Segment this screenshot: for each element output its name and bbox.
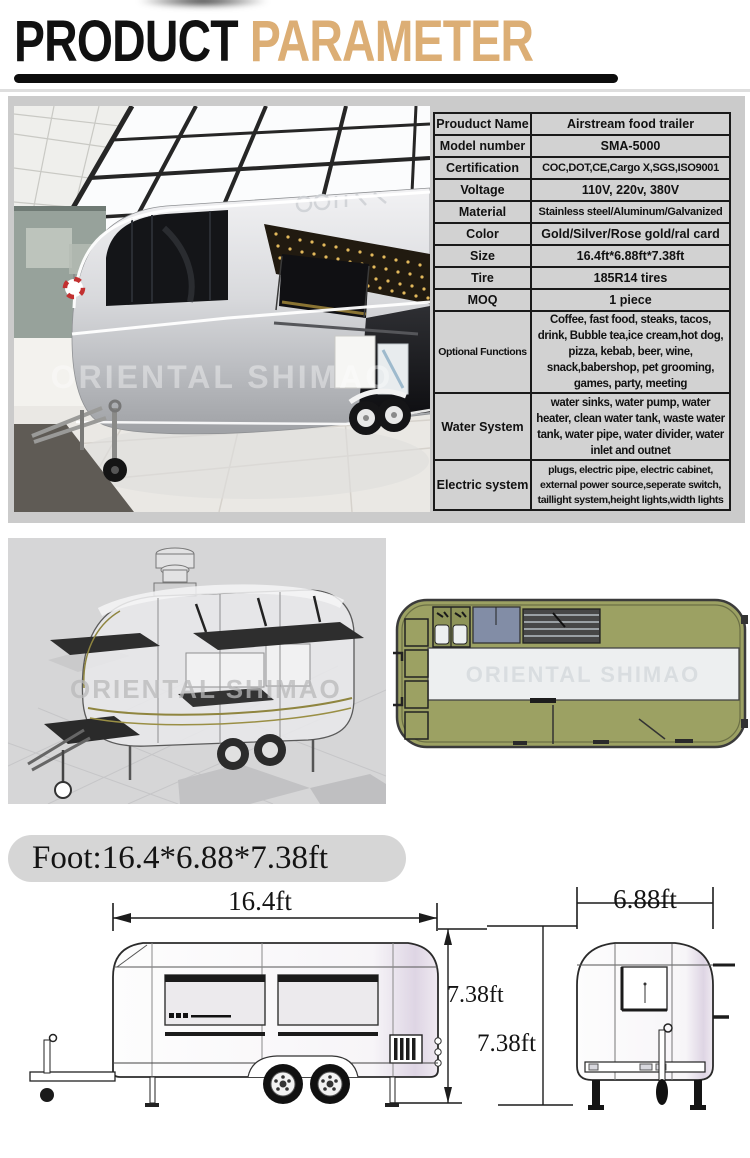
plan-sink-bowl-1: [435, 625, 449, 644]
rear-legs: [588, 1080, 706, 1110]
glass-wall-frame: [14, 206, 106, 211]
front-leg: [80, 410, 84, 450]
dim-length-label: 16.4ft: [180, 886, 340, 917]
side-lights: [435, 1038, 441, 1066]
plan-step: [530, 698, 556, 703]
arrow-left: [113, 913, 131, 923]
top-shadow-smudge: [138, 0, 268, 8]
spec-row-water-system: Water System water sinks, water pump, wa…: [435, 392, 729, 459]
height-dimension-rear: [487, 926, 577, 1105]
footprint-badge: Foot:16.4*6.88*7.38ft: [8, 835, 406, 882]
spec-table: Prouduct Name Airstream food trailer Mod…: [433, 112, 731, 511]
spec-row-material: Material Stainless steel/Aluminum/Galvan…: [435, 200, 729, 222]
spec-value: 1 piece: [532, 290, 729, 310]
cad-render: ORIENTAL SHIMAO: [8, 538, 386, 804]
product-parameter-page: PRODUCT PARAMETER: [0, 0, 750, 1158]
hub-1: [363, 415, 369, 421]
spec-label: Electric system: [435, 461, 532, 509]
spec-value: water sinks, water pump, water heater, c…: [532, 394, 729, 459]
spec-label: Optional Functions: [435, 312, 532, 392]
spec-value: 16.4ft*6.88ft*7.38ft: [532, 246, 729, 266]
spec-value: Airstream food trailer: [532, 114, 729, 134]
rear-jack: [659, 1030, 665, 1085]
floor-reflection: [69, 423, 429, 499]
plan-watermark: ORIENTAL SHIMAO: [466, 662, 701, 687]
spec-row-optional-functions: Optional Functions Coffee, fast food, st…: [435, 310, 729, 392]
spec-value: COC,DOT,CE,Cargo X,SGS,ISO9001: [532, 158, 729, 178]
plan-sink-bowl-2: [453, 625, 467, 644]
spec-value: Stainless steel/Aluminum/Galvanized: [532, 202, 729, 222]
title-underline: [14, 74, 618, 83]
page-title-black: PRODUCT: [14, 9, 238, 74]
spec-value: plugs, electric pipe, electric cabinet, …: [532, 461, 729, 509]
spec-value: Coffee, fast food, steaks, tacos, drink,…: [532, 312, 729, 392]
rear-protrusions: [713, 965, 735, 1017]
spec-row-moq: MOQ 1 piece: [435, 288, 729, 310]
spec-row-color: Color Gold/Silver/Rose gold/ral card: [435, 222, 729, 244]
spec-label: Certification: [435, 158, 532, 178]
spec-value: 110V, 220v, 380V: [532, 180, 729, 200]
dimension-drawing: [0, 885, 750, 1135]
spec-row-voltage: Voltage 110V, 220v, 380V: [435, 178, 729, 200]
lifebuoy: [65, 279, 83, 297]
cad-rim-2: [262, 742, 278, 758]
header-divider: [0, 89, 750, 92]
photo-watermark: ORIENTAL SHIMAO: [51, 359, 393, 395]
spec-label: Prouduct Name: [435, 114, 532, 134]
rear-window-latch-dot: [644, 983, 647, 986]
side-drawbar: [30, 1072, 115, 1081]
spec-label: Tire: [435, 268, 532, 288]
dim-width-label: 6.88ft: [577, 884, 713, 915]
spec-label: Color: [435, 224, 532, 244]
floor-plan: ORIENTAL SHIMAO: [393, 593, 750, 755]
side-window-1-header: [165, 975, 265, 982]
page-title: PRODUCT PARAMETER: [14, 8, 533, 75]
dim-height-rear-label: 7.38ft: [477, 1030, 536, 1058]
spec-row-product-name: Prouduct Name Airstream food trailer: [435, 114, 729, 134]
cad-rim-1: [225, 746, 241, 762]
spec-value: SMA-5000: [532, 136, 729, 156]
spec-row-tire: Tire 185R14 tires: [435, 266, 729, 288]
spec-label: Water System: [435, 394, 532, 459]
side-jockey-wheel: [40, 1088, 54, 1102]
side-jack: [44, 1040, 50, 1073]
arrow-up-1: [444, 929, 452, 945]
arrow-right: [419, 913, 437, 923]
spec-label: MOQ: [435, 290, 532, 310]
spec-label: Model number: [435, 136, 532, 156]
spec-label: Material: [435, 202, 532, 222]
hub-2: [391, 412, 397, 418]
spec-row-certification: Certification COC,DOT,CE,Cargo X,SGS,ISO…: [435, 156, 729, 178]
spec-value: 185R14 tires: [532, 268, 729, 288]
spec-row-size: Size 16.4ft*6.88ft*7.38ft: [435, 244, 729, 266]
glass-reflection: [26, 228, 72, 268]
hero-section: ORIENTAL SHIMAO Prouduct Name Airstream …: [8, 96, 745, 523]
arrow-down-1: [444, 1087, 452, 1103]
product-photo: ORIENTAL SHIMAO: [14, 106, 430, 512]
spec-label: Voltage: [435, 180, 532, 200]
cad-watermark: ORIENTAL SHIMAO: [70, 674, 342, 704]
spec-value: Gold/Silver/Rose gold/ral card: [532, 224, 729, 244]
side-window-2-header: [278, 975, 378, 982]
rear-jack-foot: [656, 1079, 668, 1105]
jockey-post: [112, 408, 117, 462]
spec-label: Size: [435, 246, 532, 266]
cad-jockey-wheel: [55, 782, 71, 798]
page-title-tan: PARAMETER: [238, 9, 533, 74]
side-window-2: [278, 975, 378, 1025]
spec-row-electric-system: Electric system plugs, electric pipe, el…: [435, 459, 729, 509]
side-jack-crank: [50, 1035, 57, 1042]
jockey-hub: [111, 466, 119, 474]
dim-height-side-label: 7.38ft: [447, 982, 504, 1009]
spec-row-model: Model number SMA-5000: [435, 134, 729, 156]
